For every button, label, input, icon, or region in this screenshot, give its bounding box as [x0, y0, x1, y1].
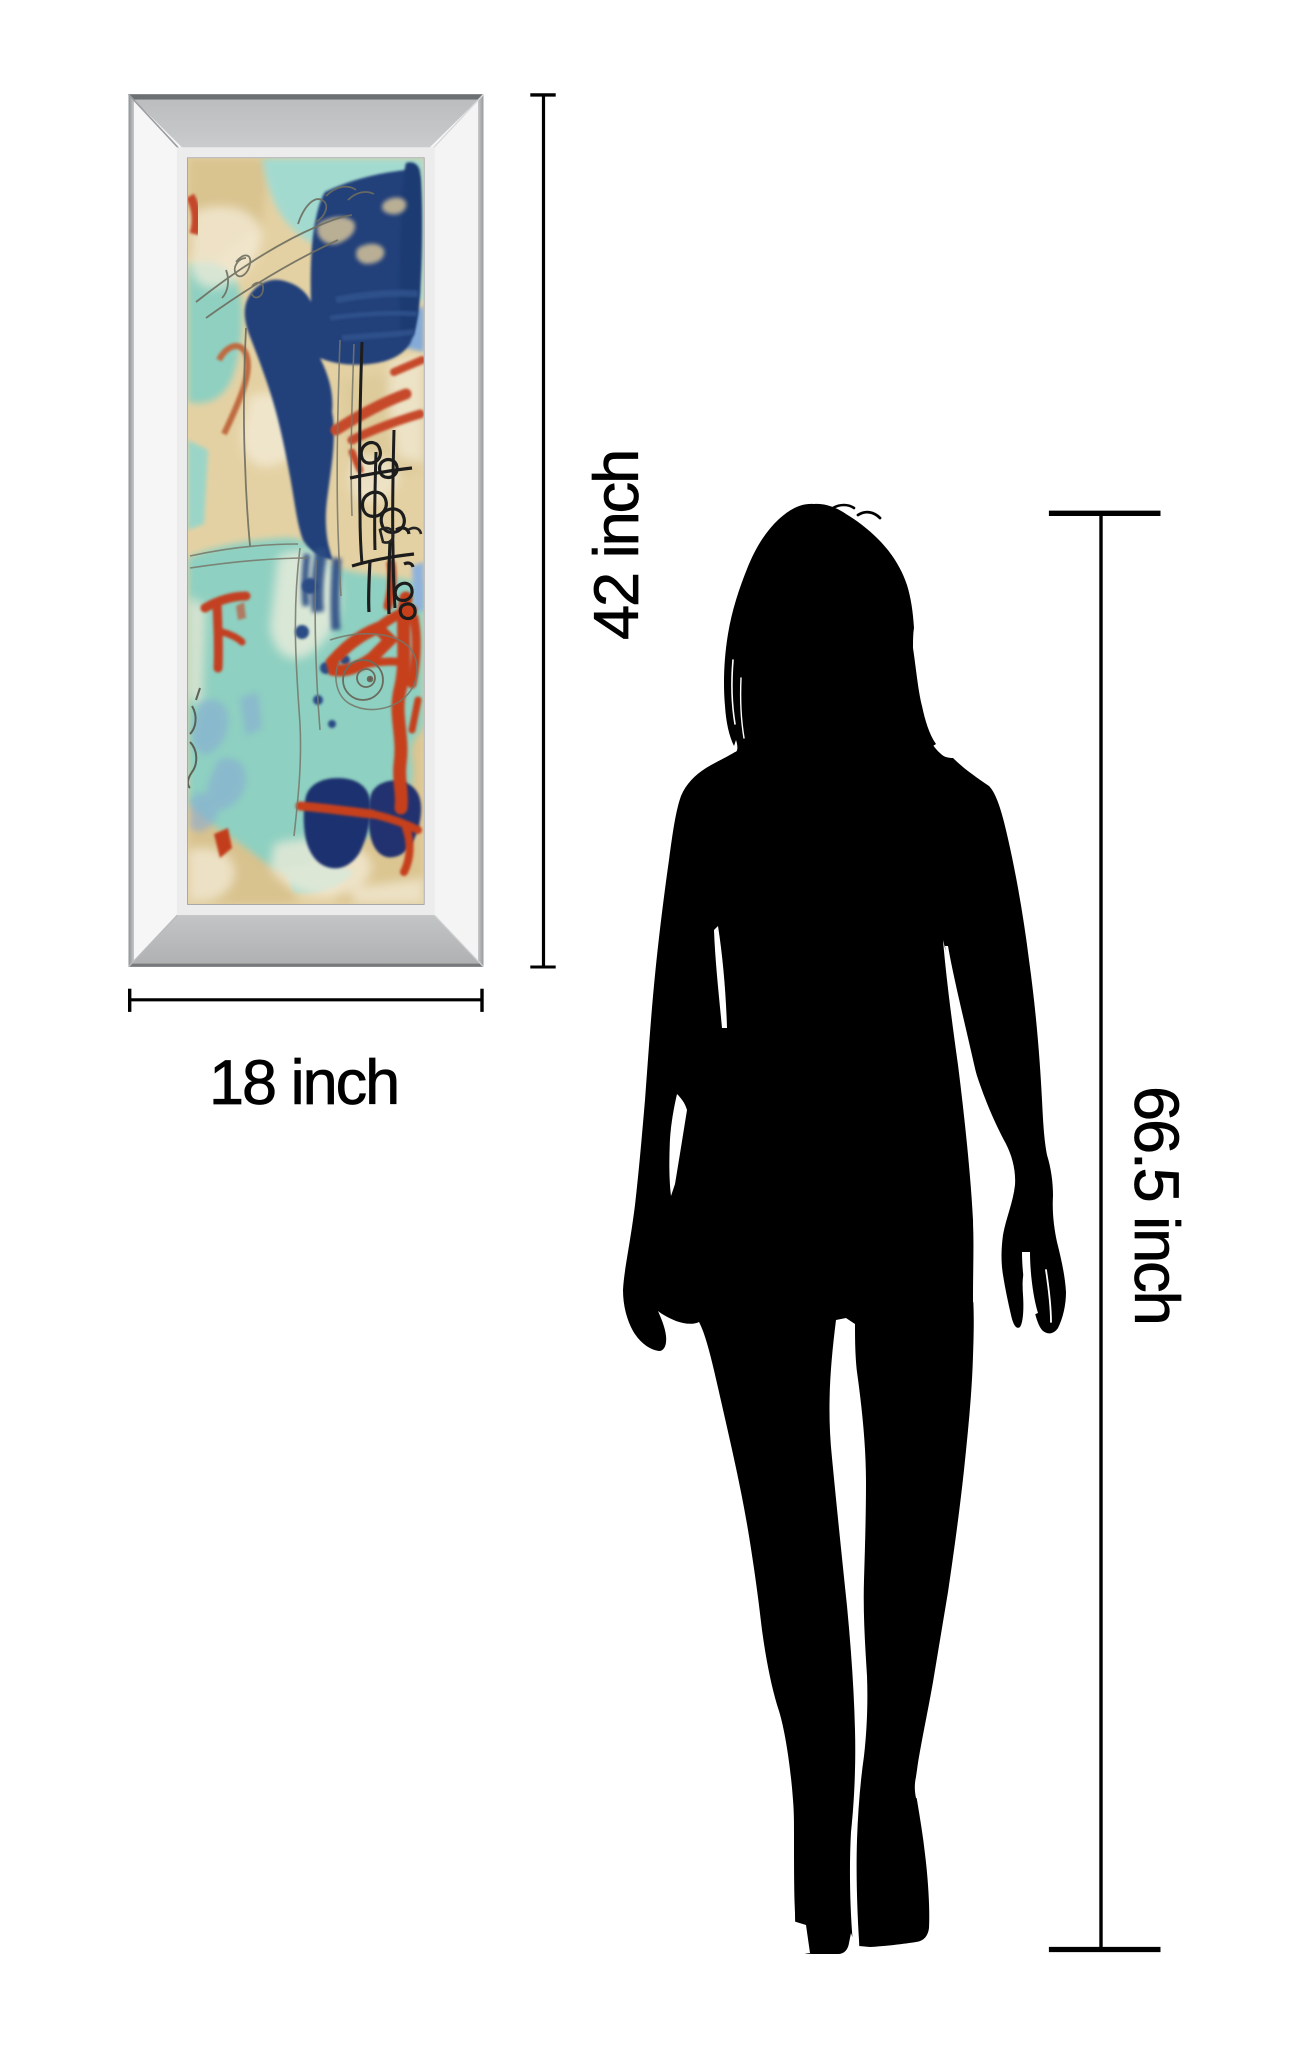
- svg-text:66.5 inch: 66.5 inch: [1121, 1086, 1191, 1324]
- svg-text:42 inch: 42 inch: [582, 451, 652, 640]
- svg-text:18 inch: 18 inch: [209, 1048, 398, 1118]
